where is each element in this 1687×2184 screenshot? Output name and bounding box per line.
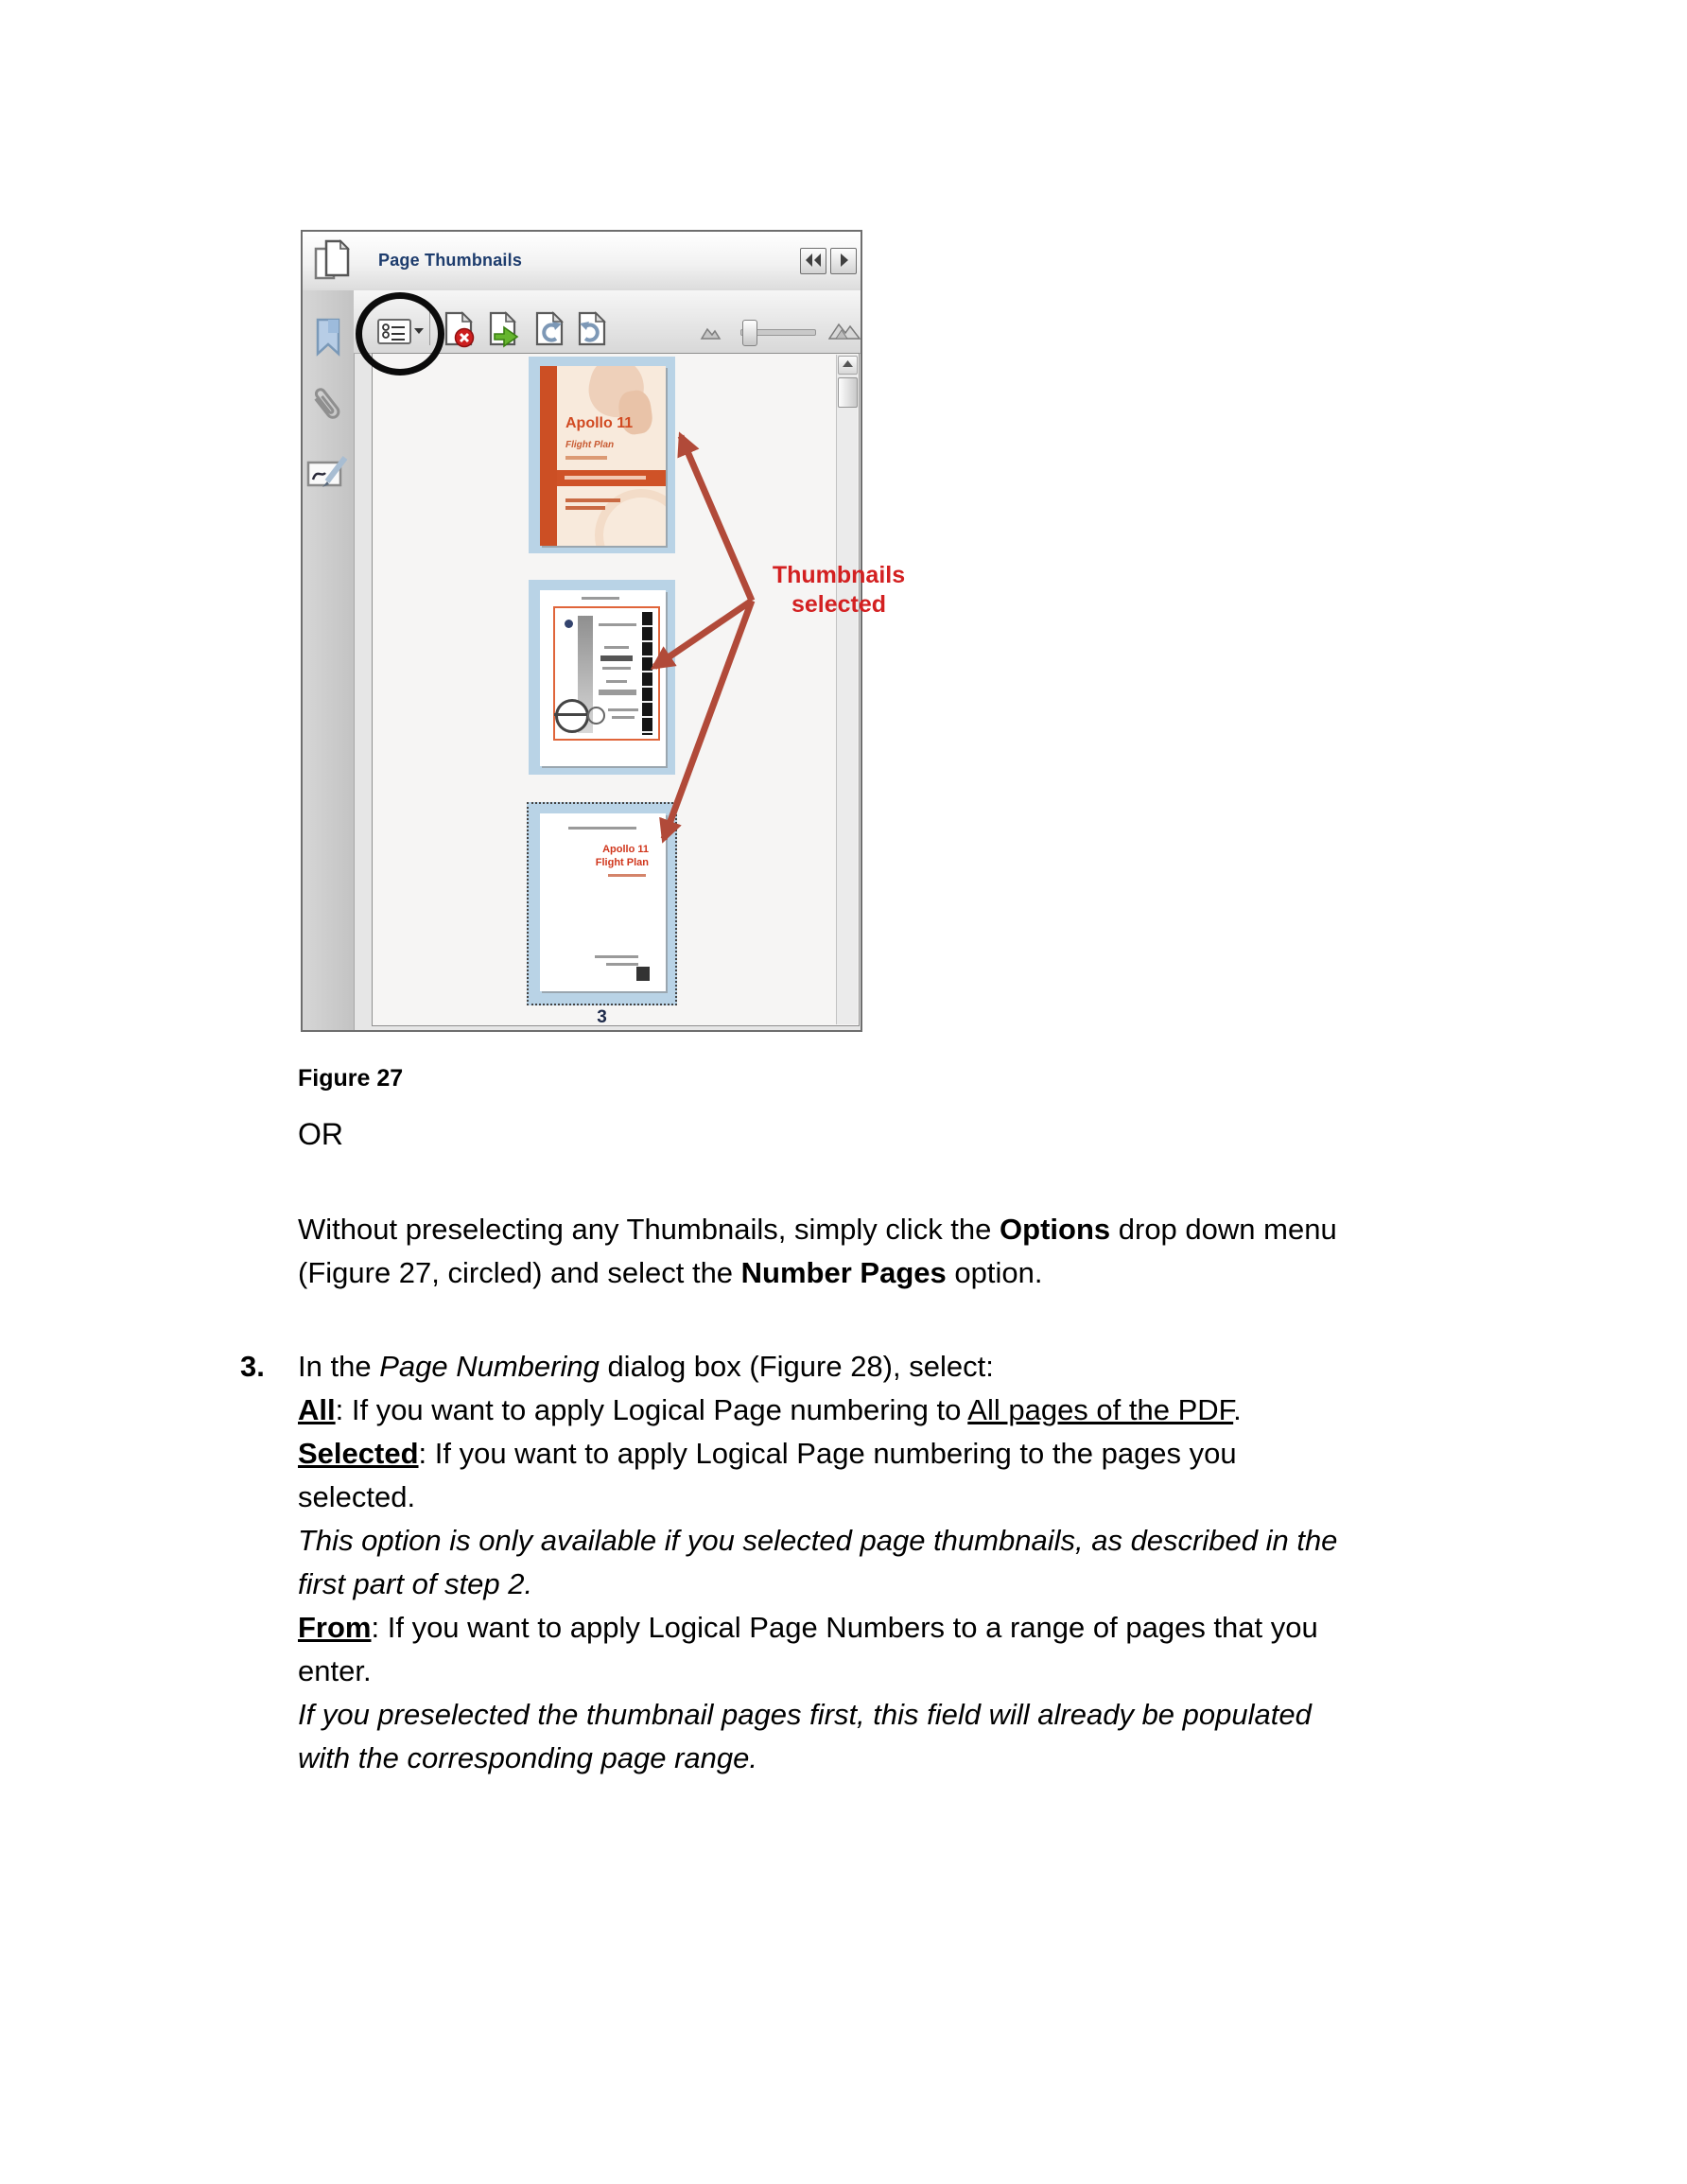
right-arrow-icon: [833, 252, 854, 269]
delete-pages-button[interactable]: [442, 310, 476, 353]
thumbnail-page-1-preview: Apollo 11 Flight Plan: [540, 366, 666, 546]
step-3-item: 3. In the Page Numbering dialog box (Fig…: [298, 1345, 1337, 1780]
zoom-in-icon[interactable]: [828, 321, 861, 345]
rotate-counterclockwise-button[interactable]: [532, 310, 566, 353]
page-thumbnails-panel: Page Thumbnails: [301, 230, 862, 1032]
attachments-paperclip-icon[interactable]: [303, 383, 354, 433]
panel-header: Page Thumbnails: [303, 232, 861, 291]
extract-page-icon: [487, 310, 523, 348]
step3-line: This option is only available if you sel…: [298, 1519, 1337, 1563]
step3-line: From: If you want to apply Logical Page …: [298, 1606, 1337, 1650]
step3-line: enter.: [298, 1650, 1337, 1693]
double-left-arrow-icon: [803, 252, 824, 269]
scrollbar-thumb[interactable]: [838, 377, 858, 408]
step-number: 3.: [240, 1345, 265, 1389]
thumbnails-scrollbar[interactable]: [836, 355, 858, 1024]
step3-line: selected.: [298, 1476, 1337, 1519]
panel-title: Page Thumbnails: [378, 232, 522, 290]
thumbnail-size-slider-handle[interactable]: [742, 320, 757, 346]
or-text: OR: [298, 1117, 343, 1152]
scroll-up-arrow-icon: [839, 357, 857, 372]
step3-line: with the corresponding page range.: [298, 1737, 1337, 1780]
rotate-ccw-icon: [532, 310, 566, 348]
pages-icon: [312, 237, 352, 288]
thumbnail-page-2-preview: [540, 590, 666, 766]
options-paragraph: Without preselecting any Thumbnails, sim…: [298, 1208, 1337, 1295]
expand-button[interactable]: [830, 248, 857, 274]
step3-line: Selected: If you want to apply Logical P…: [298, 1432, 1337, 1476]
thumbnail-page-1[interactable]: Apollo 11 Flight Plan: [529, 357, 675, 553]
thumbnails-selected-annotation: Thumbnails selected: [768, 561, 910, 620]
step3-line: If you preselected the thumbnail pages f…: [298, 1693, 1337, 1737]
signatures-icon[interactable]: [303, 453, 354, 496]
page-number-label: 3: [529, 1007, 675, 1028]
scrollbar-up-button[interactable]: [838, 356, 858, 375]
circle-annotation: [356, 292, 444, 376]
figure-caption: Figure 27: [298, 1065, 403, 1092]
thumb1-title: Apollo 11: [565, 415, 633, 432]
document-page: { "figure": { "panel_title": "Page Thumb…: [0, 0, 1687, 2184]
thumb3-title: Apollo 11: [602, 844, 649, 855]
rotate-cw-icon: [575, 310, 609, 348]
step3-line: In the Page Numbering dialog box (Figure…: [298, 1345, 1337, 1389]
navigation-sidebar: [303, 290, 355, 1030]
paragraph-line: Without preselecting any Thumbnails, sim…: [298, 1208, 1337, 1251]
zoom-out-icon[interactable]: [700, 326, 722, 345]
paragraph-line: (Figure 27, circled) and select the Numb…: [298, 1251, 1337, 1295]
figure-27-screenshot: Page Thumbnails: [301, 230, 929, 1036]
collapse-button[interactable]: [800, 248, 826, 274]
annotation-line2: selected: [768, 590, 910, 620]
extract-pages-button[interactable]: [487, 310, 523, 353]
thumbnail-page-3[interactable]: Apollo 11 Flight Plan: [527, 802, 677, 1005]
thumb1-subtitle: Flight Plan: [565, 440, 614, 450]
rotate-clockwise-button[interactable]: [575, 310, 609, 353]
thumb3-subtitle: Flight Plan: [596, 857, 649, 868]
selection-handle: [636, 967, 650, 981]
thumbnails-list: Apollo 11 Flight Plan 1: [372, 353, 860, 1026]
annotation-line1: Thumbnails: [768, 561, 910, 590]
bookmarks-icon[interactable]: [303, 317, 354, 361]
thumbnail-page-2[interactable]: [529, 580, 675, 775]
delete-page-icon: [442, 310, 476, 348]
thumbnail-page-3-preview: Apollo 11 Flight Plan: [540, 813, 666, 991]
step3-line: All: If you want to apply Logical Page n…: [298, 1389, 1337, 1432]
step3-line: first part of step 2.: [298, 1563, 1337, 1606]
